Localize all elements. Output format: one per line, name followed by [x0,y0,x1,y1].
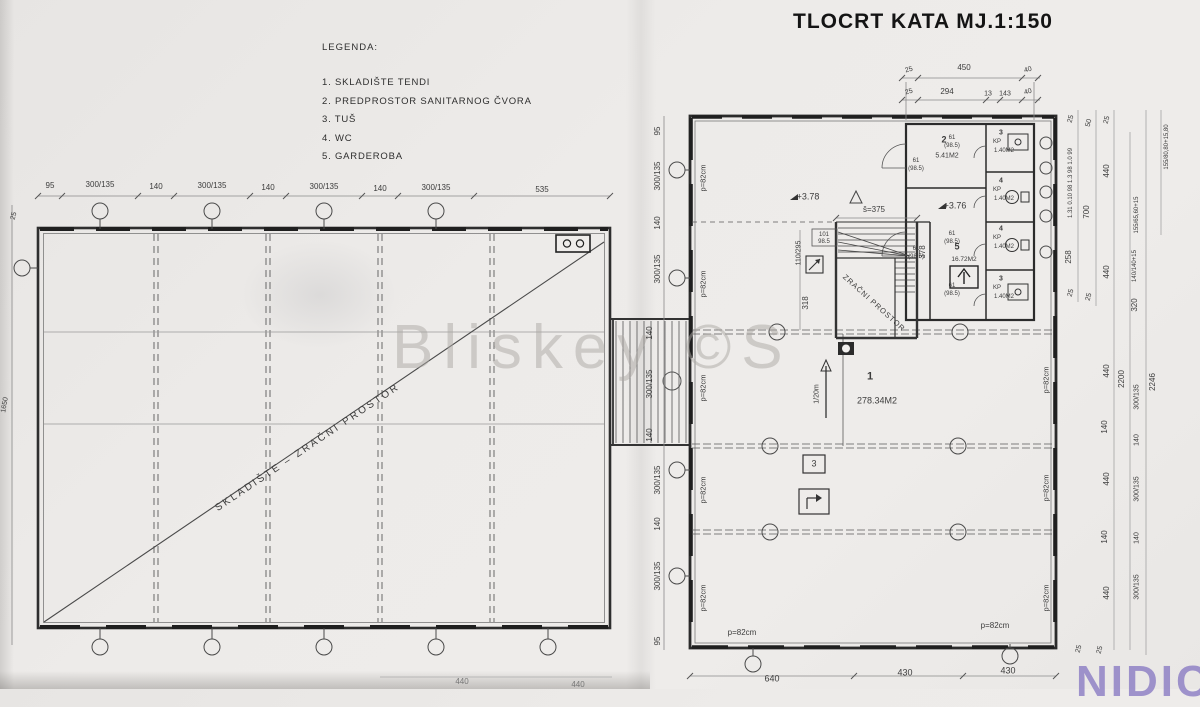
parapet-label: p=82cm [1042,585,1050,612]
parapet-label: p=82cm [699,271,707,298]
annotation-layer: 95300/135140300/135140300/135140300/1355… [0,0,1200,689]
dim-label: 155/80,80+15,80 [1164,124,1170,169]
dim-label: 140 [1101,530,1109,543]
dim-label: 700 [1083,205,1091,218]
room-area: 1.40M2 [994,294,1014,300]
dim-label: 535 [535,186,548,194]
dim-label: 300/135 [654,162,662,191]
dim-label: KP [993,285,1001,291]
room-area: 1.40M2 [994,244,1014,250]
dim-label: 440 [1103,472,1111,485]
dim-label: 440 [1103,164,1111,177]
dim-label: 25 [1075,644,1084,653]
dim-label: 300/135 [646,370,654,399]
room-area: 1.40M2 [994,196,1014,202]
dim-label: 258 [1065,250,1073,263]
parapet-label: p=82cm [699,477,707,504]
dim-label: 101 [819,232,829,238]
dim-label: 378 [919,245,927,258]
dim-label: 440 [571,681,584,689]
dim-label: 430 [1000,667,1015,676]
room-number: 4 [999,226,1003,233]
room-number: 4 [999,178,1003,185]
dim-label: 318 [802,296,810,309]
dim-label: 294 [940,88,953,96]
dim-label: 2246 [1149,373,1157,391]
dim-label: 143 [999,91,1011,98]
dim-label: 25 [904,66,913,75]
dim-label: 440 [1103,586,1111,599]
dim-label: 110/295 [796,241,803,266]
dim-label: 1.31 0.10 98 1.3 98 1.0 99 [1068,148,1074,218]
dim-label: 95 [46,182,55,190]
dim-label: 140 [646,326,654,339]
dim-label: 300/135 [198,182,227,190]
dim-label: 140 [149,183,162,191]
dim-label: 25 [1103,115,1112,124]
dim-label: 25 [10,211,19,220]
dim-label: 25 [904,88,913,97]
dim-label: 61 [949,135,956,141]
dim-label: 300/135 [422,184,451,192]
dim-label: 40 [1023,66,1032,75]
room-area: 16.72M2 [951,257,976,264]
dim-label: 450 [957,64,970,72]
dim-label: 300/135 [654,562,662,591]
parapet-label: p=82cm [699,375,707,402]
dim-label: 2200 [1118,370,1126,388]
room-area: 1.40M2 [994,148,1014,154]
room-area: 278.34M2 [857,397,897,406]
dim-label: 300/135 [1134,476,1141,501]
level-marker: +3.76 [944,202,967,211]
dim-label: 320 [1131,298,1139,311]
dim-label: 300/135 [310,183,339,191]
dim-label: KP [993,235,1001,241]
dim-label: 95 [654,127,662,136]
room-number: 1 [867,372,873,383]
level-marker: +3.78 [797,193,820,202]
room-number: 3 [999,276,1003,283]
room-number: 5 [954,243,959,252]
dim-label: (98.5) [944,291,960,297]
dim-label: 440 [455,678,468,686]
parapet-label: p=82cm [1042,367,1050,394]
dim-label: 140 [646,428,654,441]
dim-label: 300/135 [1134,384,1141,409]
dim-label: 140 [654,517,662,530]
dim-label: 13 [984,91,992,98]
dim-label: 140 [1134,434,1141,446]
dim-label: 430 [897,669,912,678]
dim-label: 140 [1134,532,1141,544]
left-plan-diagonal-label: SKLADIŠTE – ZRAČNI PROSTOR [214,382,402,514]
dim-label: 98.5 [818,239,830,245]
parapet-label: p=82cm [699,165,707,192]
dim-label: 40 [1023,88,1032,97]
dim-label: 300/135 [86,181,115,189]
dim-label: 640 [764,675,779,684]
dim-label: KP [993,139,1001,145]
dim-label: 140 [1101,420,1109,433]
parapet-label: p=82cm [1042,475,1050,502]
dim-label: 140/140+15 [1132,250,1138,282]
dim-label: 61 [949,231,956,237]
room-area: 5.41M2 [935,153,958,160]
stairwell-void-label: ZRAČNI PROSTOR [841,273,906,333]
dim-label: 300/135 [654,255,662,284]
parapet-label: p=82cm [728,629,757,637]
dim-label: 61 [949,283,956,289]
dim-label: 25 [1067,114,1076,123]
dim-label: 95 [654,637,662,646]
dim-label: 300/135 [1134,574,1141,599]
parapet-label: p=82cm [981,622,1010,630]
dim-label: 440 [1103,265,1111,278]
dim-label: 140 [373,185,386,193]
dim-label: 61 [913,158,920,164]
dim-label: 140 [261,184,274,192]
scanned-floorplan-page: { "title": "TLOCRT KATA MJ.1:150", "lege… [0,0,1200,689]
slope-label: 1/20m [814,384,821,403]
dim-label: 155/65,60+15 [1134,197,1140,234]
dim-label: 25 [1085,292,1094,301]
dim-label: 440 [1103,364,1111,377]
dim-label: KP [993,187,1001,193]
parapet-label: p=82cm [699,585,707,612]
dim-label: (98.5) [908,166,924,172]
dim-label: 25 [1096,645,1105,654]
dim-label: (98.5) [944,143,960,149]
dim-label: 140 [654,216,662,229]
dim-label: 50 [1085,118,1094,127]
dim-label: 1650 [0,397,10,414]
stair-dimension: š=375 [863,206,885,214]
room-number: 3 [999,130,1003,137]
room-ref-number: 3 [811,460,816,469]
dim-label: 25 [1067,288,1076,297]
dim-label: 300/135 [654,466,662,495]
